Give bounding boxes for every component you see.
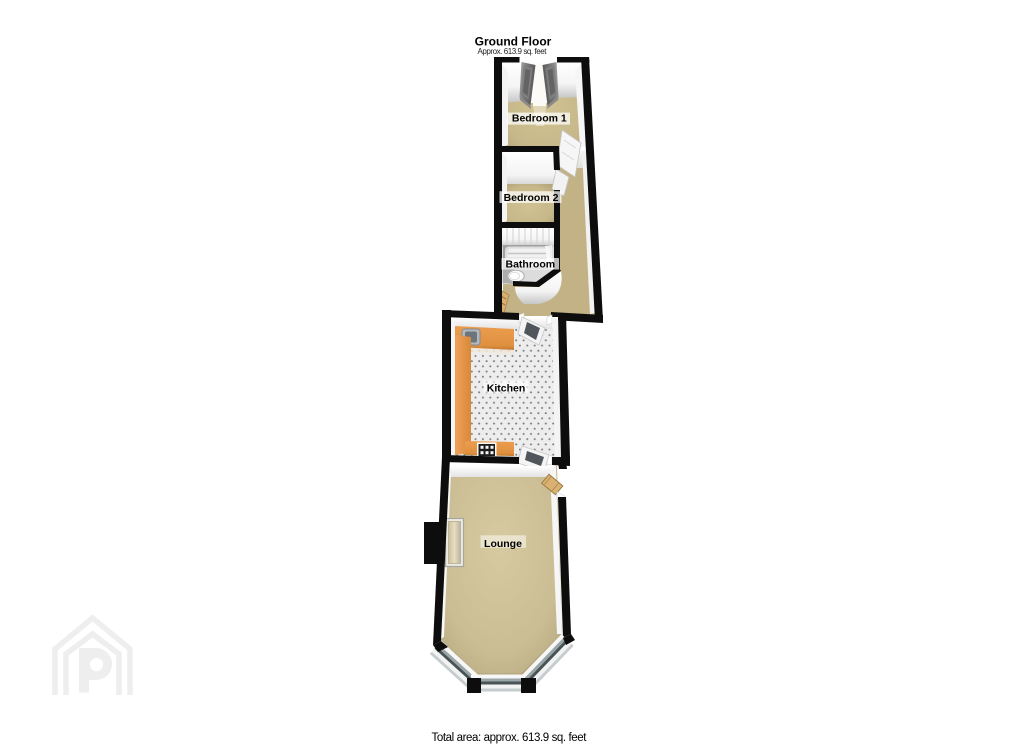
svg-text:Bedroom 2: Bedroom 2 bbox=[504, 192, 559, 204]
svg-text:Bathroom: Bathroom bbox=[506, 259, 556, 271]
svg-text:Approx. 613.9 sq. feet: Approx. 613.9 sq. feet bbox=[478, 47, 548, 56]
svg-text:Bedroom 1: Bedroom 1 bbox=[512, 112, 567, 124]
svg-text:Kitchen: Kitchen bbox=[487, 383, 526, 395]
svg-text:Lounge: Lounge bbox=[484, 538, 522, 550]
svg-text:Total area: approx. 613.9 sq.: Total area: approx. 613.9 sq. feet bbox=[432, 732, 588, 744]
